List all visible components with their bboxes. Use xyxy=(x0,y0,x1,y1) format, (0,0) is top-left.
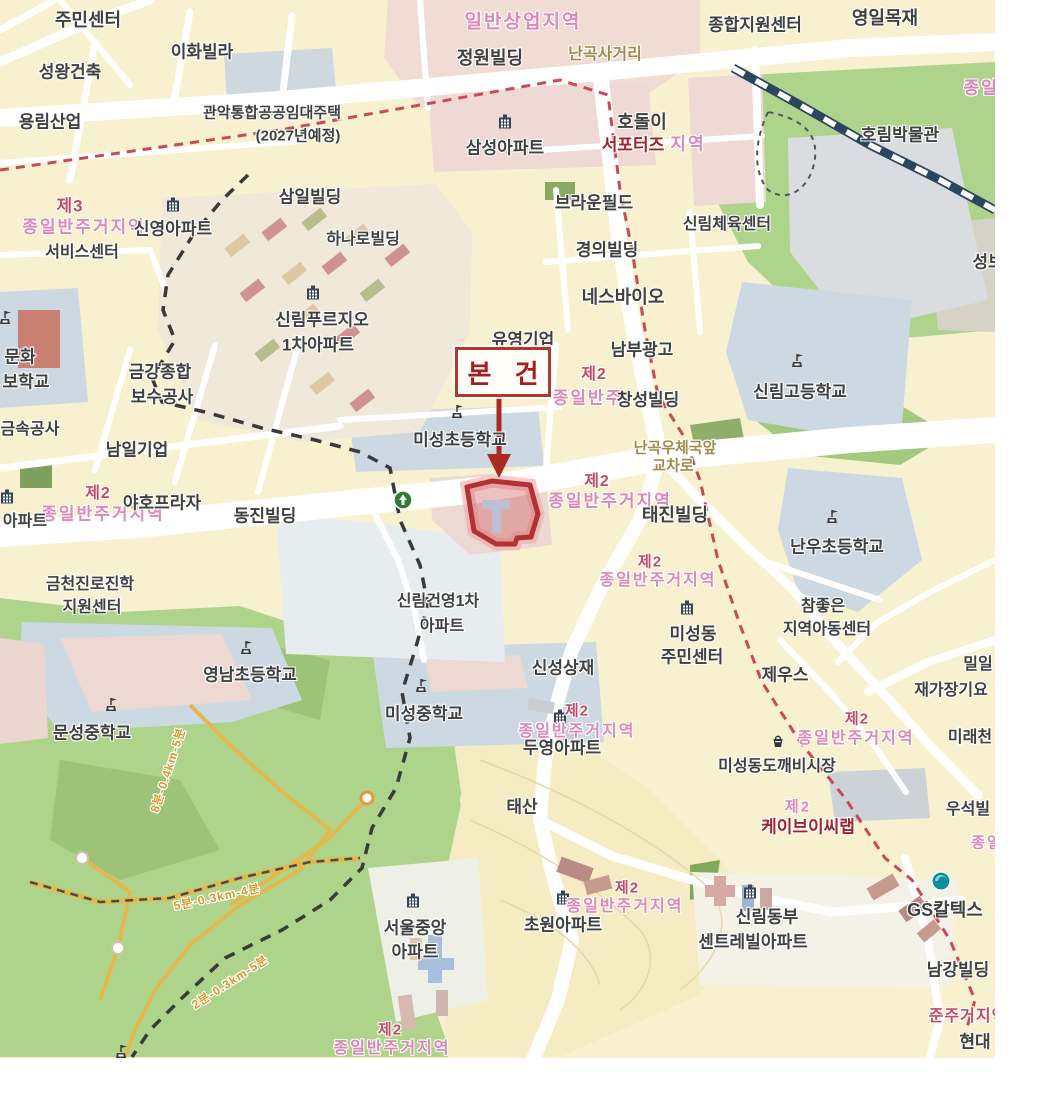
map-label: (2027년예정) xyxy=(256,129,341,144)
map-label: 태산 xyxy=(506,799,537,816)
map-label: 일반상업지역 xyxy=(465,13,582,32)
map-label: 난우초등학교 xyxy=(790,539,884,556)
map-label: 영남초등학교 xyxy=(203,667,297,684)
map-label: 미성중학교 xyxy=(385,706,463,723)
map-label: 아파트 xyxy=(3,514,47,530)
map-label: 신영아파트 xyxy=(134,221,212,238)
map-label: 종일 xyxy=(971,836,995,851)
map-label: 금강종합 xyxy=(129,364,192,381)
map-label: 초원아파트 xyxy=(524,917,602,934)
map-label: 용림산업 xyxy=(19,114,82,131)
map-label: 네스바이오 xyxy=(582,288,665,306)
map-label: 종일반주거지역 xyxy=(599,573,716,589)
map-label: 현대 xyxy=(959,1034,990,1051)
map-label: 1차아파트 xyxy=(282,337,354,354)
map-label: 밀일 xyxy=(963,657,992,673)
map-label: 신림푸르지오 xyxy=(275,312,369,329)
map-label: 아파트 xyxy=(392,944,439,961)
map-label: 신림건영1차 xyxy=(397,594,480,610)
map-label: 미성동 xyxy=(670,626,717,643)
map-label: 남강빌딩 xyxy=(927,962,990,979)
map-label: 동진빌딩 xyxy=(234,508,297,525)
gs-icon xyxy=(931,871,951,891)
building-icon xyxy=(305,286,321,301)
map-label: 난곡우체국앞 xyxy=(634,441,717,456)
map-label: 보수공사 xyxy=(131,389,194,406)
screenshot-canvas: 일반상업지역종일반주거지역제3지역종일반종일반주제2종일반주거지역제2종일반주거… xyxy=(0,0,1045,1115)
map-label: 종일반주 xyxy=(553,390,624,407)
map-label: 두영아파트 xyxy=(523,740,601,757)
map-label: 미래천 xyxy=(948,730,992,746)
building-icon xyxy=(497,115,513,130)
map-label: 지역아동센터 xyxy=(783,622,871,638)
oneway-icon xyxy=(393,490,413,510)
map-graphics xyxy=(0,0,995,1058)
school-icon xyxy=(239,640,255,656)
map-label: 호돌이 xyxy=(617,113,667,131)
map-label: 센트레빌아파트 xyxy=(698,934,807,951)
map-label: 난곡사거리 xyxy=(568,47,642,63)
map-label: 야호프라자 xyxy=(123,495,201,512)
map-label: 태진빌딩 xyxy=(642,506,708,524)
market-icon xyxy=(771,734,786,748)
school-icon xyxy=(790,353,806,369)
map-label: 미성초등학교 xyxy=(413,432,507,449)
building-icon xyxy=(0,490,15,505)
building-icon xyxy=(165,198,181,213)
map-label: 제2 xyxy=(845,712,869,727)
map-label: 종일반 xyxy=(964,80,995,97)
building-icon xyxy=(405,894,421,909)
map-label: 문성중학교 xyxy=(53,725,131,742)
map-label: 신림동부 xyxy=(736,909,799,926)
map-label: 제우스 xyxy=(762,667,809,684)
map-label: 서포터즈 xyxy=(602,137,665,154)
map-label: 호림박물관 xyxy=(861,127,939,144)
map-label: 경의빌딩 xyxy=(576,242,639,259)
school-icon xyxy=(450,404,466,420)
node-icon xyxy=(74,850,90,866)
map-label: 제2 xyxy=(565,704,589,719)
map-label: 영일목재 xyxy=(852,9,918,27)
map-label: 제2 xyxy=(85,486,111,502)
map-label: 제2 xyxy=(378,1023,402,1038)
map-label: 미성동도깨비시장 xyxy=(718,759,836,775)
map-label: 제2 xyxy=(584,474,610,490)
map-label: 지원센터 xyxy=(63,600,122,616)
map-label: 남일기업 xyxy=(106,442,169,459)
map-label: 신림고등학교 xyxy=(753,384,847,401)
map-label: 지역 xyxy=(670,136,705,153)
map-label: 서울중앙 xyxy=(384,920,447,937)
school-icon xyxy=(825,509,841,525)
map-label: 종일반주거지역 xyxy=(566,899,683,915)
node-orange-icon xyxy=(358,789,376,807)
map-label: 제2 xyxy=(785,800,811,815)
map-label: 금천진로진학 xyxy=(46,577,134,593)
map-label: 문화 xyxy=(4,349,35,366)
subject-annotation-box: 본 건 xyxy=(455,347,551,397)
subject-annotation-label: 본 건 xyxy=(459,354,546,391)
building-icon xyxy=(742,885,758,900)
building-icon xyxy=(679,601,695,616)
map-label: 종일반주거지역 xyxy=(22,219,145,236)
map-label: 삼일빌딩 xyxy=(279,189,342,206)
map-label: 교차로 xyxy=(652,459,693,474)
school-icon xyxy=(104,697,120,713)
map-label: 종합지원센터 xyxy=(708,17,802,34)
school-icon xyxy=(114,1044,130,1058)
map-label: 제2 xyxy=(615,881,639,896)
map-label: 이화빌라 xyxy=(171,44,234,61)
map-label: 우석빌 xyxy=(946,802,990,818)
map-label: 주민센터 xyxy=(55,11,121,29)
map-label: 보학교 xyxy=(3,374,50,391)
school-icon xyxy=(414,678,430,694)
map-label: 재가장기요 xyxy=(914,683,988,699)
map-label: 금속공사 xyxy=(1,422,60,438)
map-canvas: 일반상업지역종일반주거지역제3지역종일반종일반주제2종일반주거지역제2종일반주거… xyxy=(0,0,995,1058)
map-label: 남부광고 xyxy=(611,342,674,359)
map-label: 성왕건축 xyxy=(39,64,102,81)
map-label: 서비스센터 xyxy=(45,245,119,261)
map-label: 케이브이씨랩 xyxy=(761,819,855,836)
map-label: 성보 xyxy=(972,254,995,271)
map-label: 준주거지역 xyxy=(929,1009,995,1025)
map-label: 창성빌딩 xyxy=(617,392,680,409)
map-label: 브라운필드 xyxy=(555,195,633,212)
map-label: 관악통합공공임대주택 xyxy=(203,106,341,121)
map-label: 정원빌딩 xyxy=(457,49,523,67)
map-label: 삼성아파트 xyxy=(466,140,544,157)
map-label: 참좋은 xyxy=(801,599,845,615)
map-label: GS칼텍스 xyxy=(907,901,983,919)
node-icon xyxy=(110,940,126,956)
map-label: 종일반주거지역 xyxy=(797,731,914,747)
map-label: 제2 xyxy=(638,555,662,570)
map-label: 신림체육센터 xyxy=(683,217,771,233)
map-label: 종일반주거지역 xyxy=(333,1041,450,1057)
map-label: 주민센터 xyxy=(661,649,724,666)
map-label: 하나로빌딩 xyxy=(326,232,400,248)
map-label: 신성상재 xyxy=(532,660,595,677)
map-label: 제3 xyxy=(56,198,83,215)
map-label: 제2 xyxy=(581,367,607,383)
map-label: 아파트 xyxy=(420,619,464,635)
school-icon xyxy=(0,310,14,326)
map-label: 유영기업 xyxy=(492,332,555,349)
